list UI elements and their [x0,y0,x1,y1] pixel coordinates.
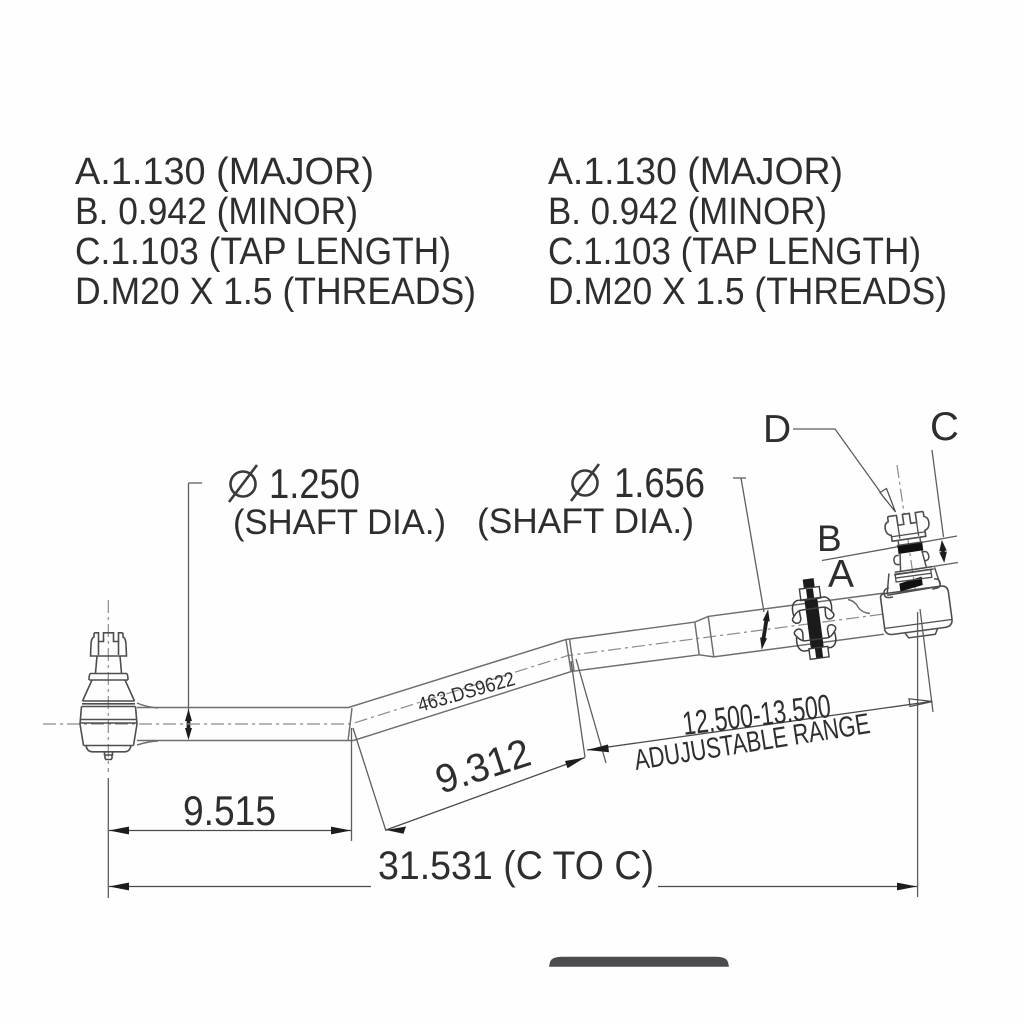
svg-text:B. 0.942 (MINOR): B. 0.942 (MINOR) [75,191,358,233]
svg-text:A: A [828,553,854,596]
svg-text:C.1.103 (TAP LENGTH): C.1.103 (TAP LENGTH) [75,231,451,273]
svg-text:1.250: 1.250 [269,460,360,507]
svg-text:463.DS9622: 463.DS9622 [415,668,517,717]
svg-text:D.M20 X 1.5 (THREADS): D.M20 X 1.5 (THREADS) [548,271,947,313]
svg-text:D.M20 X 1.5 (THREADS): D.M20 X 1.5 (THREADS) [75,271,476,313]
svg-text:A.1.130 (MAJOR): A.1.130 (MAJOR) [75,151,374,193]
svg-text:9.312: 9.312 [430,731,536,803]
svg-text:(SHAFT DIA.): (SHAFT DIA.) [477,502,694,541]
svg-text:(SHAFT DIA.): (SHAFT DIA.) [233,503,446,542]
svg-text:A.1.130 (MAJOR): A.1.130 (MAJOR) [548,151,843,193]
svg-text:C.1.103 (TAP LENGTH): C.1.103 (TAP LENGTH) [548,231,921,273]
svg-text:9.515: 9.515 [183,787,276,834]
svg-text:B. 0.942 (MINOR): B. 0.942 (MINOR) [548,191,827,233]
svg-text:31.531 (C TO C): 31.531 (C TO C) [378,844,654,888]
svg-text:C: C [930,405,959,449]
svg-text:D: D [763,408,791,451]
svg-text:1.656: 1.656 [614,459,705,506]
